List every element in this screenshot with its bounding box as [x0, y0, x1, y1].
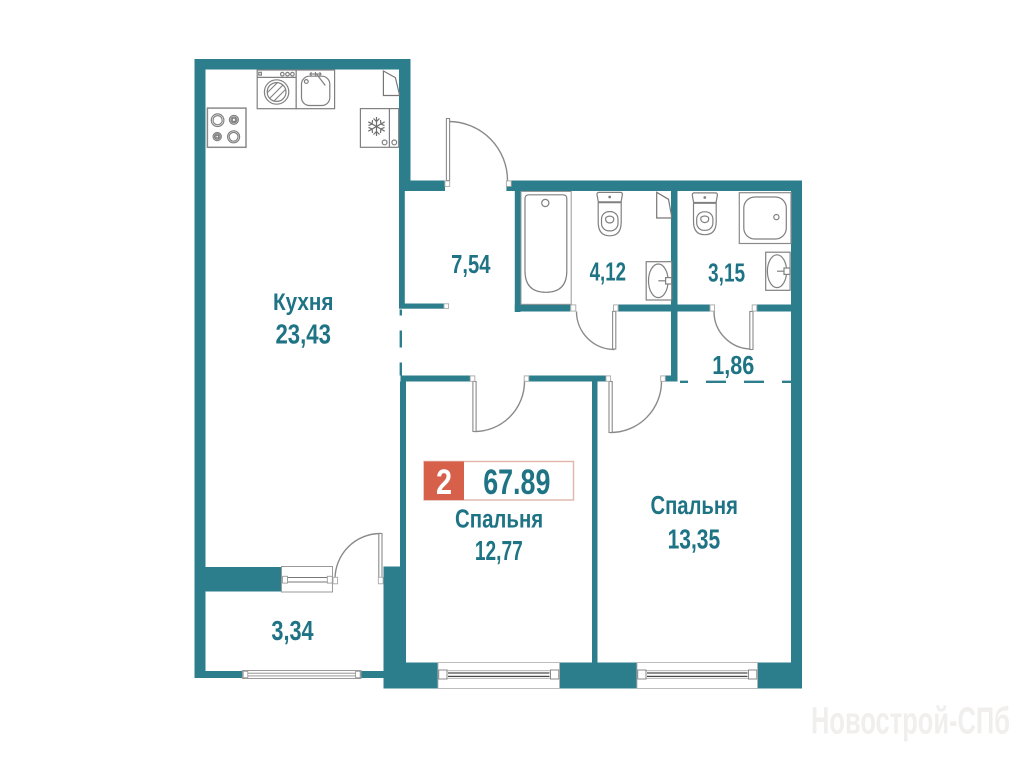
- svg-text:3,34: 3,34: [271, 615, 314, 646]
- svg-text:13,35: 13,35: [668, 523, 721, 554]
- svg-text:23,43: 23,43: [276, 319, 331, 350]
- svg-text:67.89: 67.89: [483, 462, 550, 502]
- svg-text:2: 2: [436, 462, 452, 502]
- svg-text:Новострой-СПб: Новострой-СПб: [811, 701, 1010, 743]
- svg-text:Спальня: Спальня: [650, 490, 738, 520]
- svg-text:1,86: 1,86: [712, 350, 754, 380]
- svg-text:7,54: 7,54: [451, 249, 491, 279]
- svg-text:12,77: 12,77: [475, 535, 523, 566]
- svg-text:Спальня: Спальня: [455, 503, 543, 533]
- svg-text:3,15: 3,15: [708, 258, 745, 288]
- svg-text:Кухня: Кухня: [273, 289, 334, 316]
- svg-text:4,12: 4,12: [590, 257, 626, 287]
